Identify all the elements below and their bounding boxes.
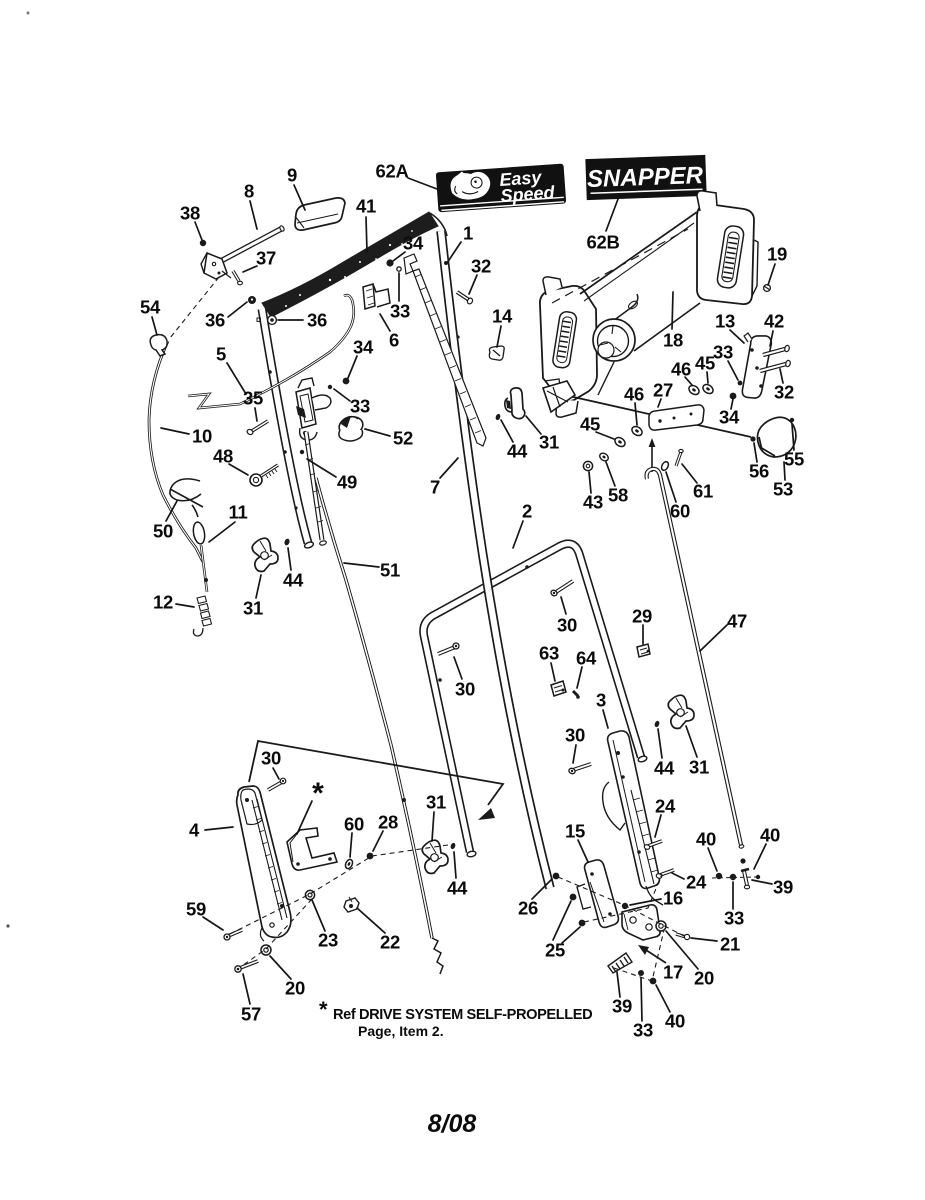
svg-text:2: 2: [522, 501, 532, 522]
svg-text:33: 33: [724, 908, 744, 929]
svg-text:*: *: [319, 997, 328, 1022]
svg-text:36: 36: [205, 310, 225, 331]
svg-text:42: 42: [764, 311, 784, 332]
svg-text:39: 39: [612, 996, 632, 1017]
svg-text:47: 47: [727, 611, 747, 632]
svg-text:*: *: [312, 777, 324, 810]
svg-text:29: 29: [632, 606, 652, 627]
svg-text:24: 24: [655, 796, 676, 817]
svg-text:33: 33: [633, 1020, 653, 1041]
svg-text:40: 40: [696, 829, 716, 850]
svg-text:52: 52: [393, 428, 413, 449]
svg-text:18: 18: [663, 330, 683, 351]
svg-text:16: 16: [663, 888, 683, 909]
svg-text:59: 59: [186, 899, 206, 920]
svg-text:60: 60: [670, 501, 690, 522]
svg-text:31: 31: [426, 792, 446, 813]
svg-text:3: 3: [596, 690, 606, 711]
svg-text:24: 24: [686, 872, 707, 893]
svg-text:40: 40: [760, 825, 780, 846]
svg-text:43: 43: [583, 492, 603, 513]
svg-text:63: 63: [539, 643, 559, 664]
svg-text:13: 13: [715, 311, 735, 332]
svg-text:10: 10: [192, 426, 212, 447]
svg-text:46: 46: [671, 359, 691, 380]
svg-text:56: 56: [749, 461, 769, 482]
svg-text:30: 30: [557, 615, 577, 636]
svg-text:14: 14: [492, 306, 513, 327]
svg-text:28: 28: [378, 812, 398, 833]
svg-text:6: 6: [389, 330, 399, 351]
svg-text:9: 9: [287, 165, 297, 186]
svg-text:30: 30: [261, 748, 281, 769]
svg-text:51: 51: [380, 560, 400, 581]
svg-text:31: 31: [689, 757, 709, 778]
svg-text:23: 23: [318, 930, 338, 951]
svg-text:19: 19: [767, 244, 787, 265]
svg-text:61: 61: [693, 481, 713, 502]
svg-text:34: 34: [719, 407, 740, 428]
svg-text:30: 30: [455, 679, 475, 700]
svg-text:33: 33: [390, 301, 410, 322]
svg-text:40: 40: [665, 1011, 685, 1032]
svg-text:27: 27: [653, 380, 673, 401]
svg-text:33: 33: [713, 342, 733, 363]
svg-text:31: 31: [243, 598, 263, 619]
svg-text:55: 55: [784, 449, 804, 470]
svg-text:44: 44: [507, 441, 528, 462]
svg-text:1: 1: [463, 223, 473, 244]
svg-text:54: 54: [140, 297, 161, 318]
svg-text:62B: 62B: [586, 232, 619, 253]
svg-text:36: 36: [307, 310, 327, 331]
svg-text:35: 35: [243, 388, 263, 409]
svg-text:45: 45: [580, 414, 600, 435]
svg-text:57: 57: [241, 1004, 261, 1025]
svg-text:58: 58: [608, 485, 628, 506]
svg-text:44: 44: [447, 878, 468, 899]
svg-text:53: 53: [773, 479, 793, 500]
svg-text:49: 49: [337, 472, 357, 493]
svg-text:41: 41: [356, 196, 376, 217]
svg-text:48: 48: [213, 446, 233, 467]
svg-text:17: 17: [663, 962, 683, 983]
svg-text:11: 11: [229, 502, 248, 523]
svg-text:22: 22: [380, 932, 400, 953]
svg-text:20: 20: [694, 968, 714, 989]
svg-text:31: 31: [539, 432, 559, 453]
svg-text:26: 26: [518, 898, 538, 919]
svg-text:62A: 62A: [375, 161, 408, 182]
svg-text:46: 46: [624, 384, 644, 405]
svg-text:7: 7: [430, 477, 440, 498]
svg-text:64: 64: [576, 648, 597, 669]
svg-text:30: 30: [565, 725, 585, 746]
svg-text:60: 60: [344, 814, 364, 835]
svg-text:8: 8: [244, 181, 254, 202]
svg-text:38: 38: [180, 203, 200, 224]
svg-text:4: 4: [189, 820, 200, 841]
svg-text:8/08: 8/08: [428, 1110, 477, 1138]
svg-text:34: 34: [353, 337, 374, 358]
svg-text:21: 21: [720, 934, 740, 955]
svg-text:37: 37: [256, 248, 276, 269]
svg-text:32: 32: [774, 382, 794, 403]
svg-text:34: 34: [403, 233, 424, 254]
svg-text:45: 45: [695, 353, 715, 374]
svg-text:32: 32: [471, 256, 491, 277]
svg-text:39: 39: [773, 877, 793, 898]
svg-text:Page, Item 2.: Page, Item 2.: [358, 1023, 444, 1039]
svg-text:33: 33: [350, 396, 370, 417]
svg-text:50: 50: [153, 521, 173, 542]
svg-text:12: 12: [153, 592, 173, 613]
svg-text:5: 5: [216, 344, 226, 365]
svg-text:Ref DRIVE SYSTEM SELF-PROPELLE: Ref DRIVE SYSTEM SELF-PROPELLED: [333, 1007, 592, 1023]
svg-text:15: 15: [565, 821, 585, 842]
svg-text:20: 20: [285, 978, 305, 999]
svg-text:SNAPPER: SNAPPER: [587, 162, 705, 193]
svg-text:44: 44: [283, 570, 304, 591]
svg-text:44: 44: [654, 758, 675, 779]
